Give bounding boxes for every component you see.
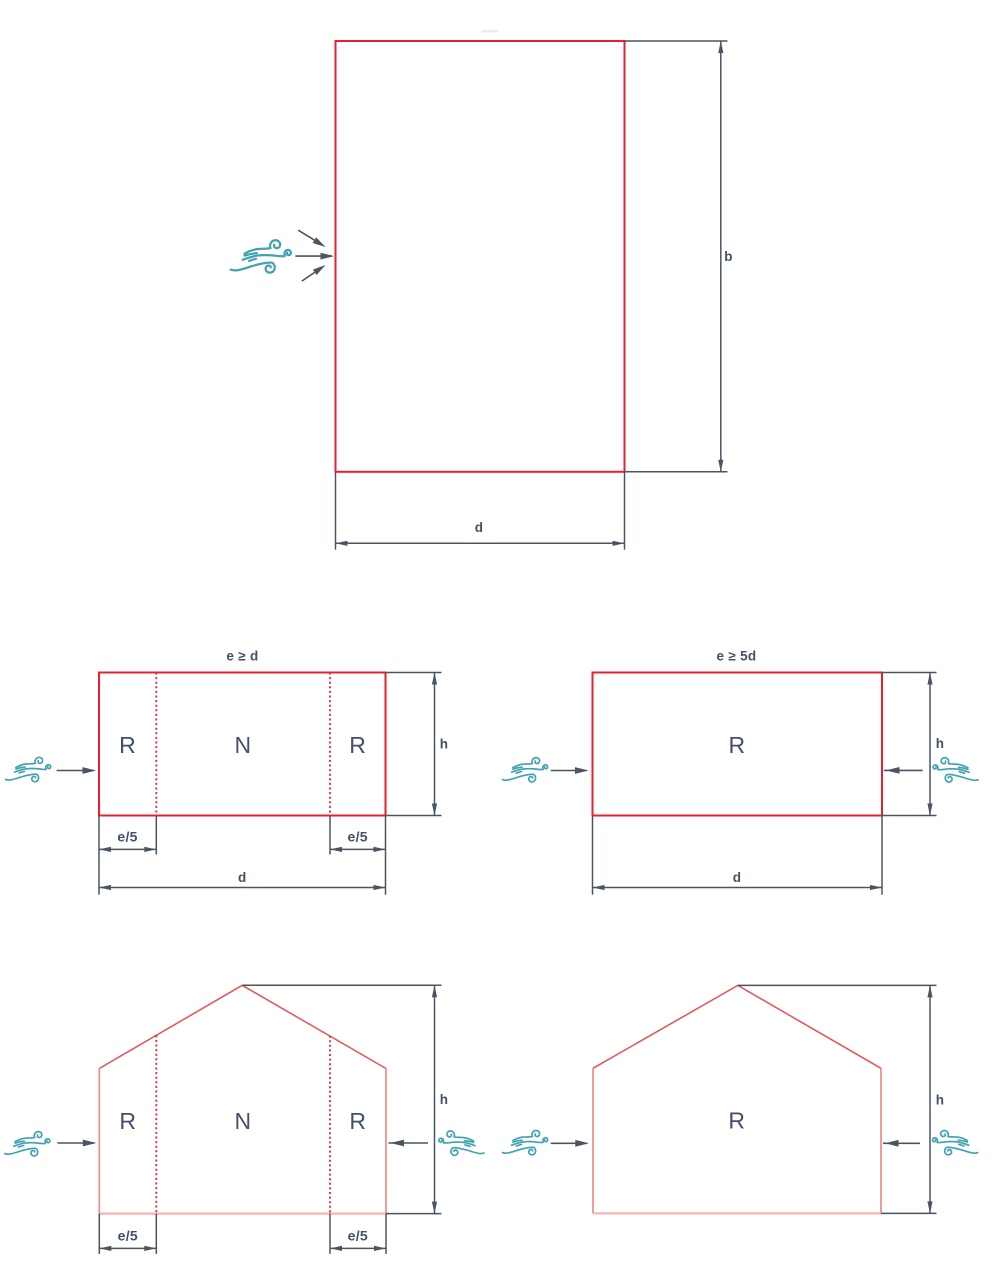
svg-text:e ≥ d: e ≥ d xyxy=(226,649,258,664)
svg-text:b: b xyxy=(724,249,733,264)
svg-text:e ≥ 5d: e ≥ 5d xyxy=(717,649,757,664)
svg-text:e/5: e/5 xyxy=(118,1228,138,1244)
svg-text:e/5: e/5 xyxy=(348,829,368,845)
svg-text:R: R xyxy=(349,1108,366,1134)
svg-text:R: R xyxy=(349,732,366,758)
svg-text:R: R xyxy=(728,1108,745,1134)
svg-text:h: h xyxy=(440,737,449,752)
svg-text:N: N xyxy=(235,732,252,758)
svg-text:d: d xyxy=(733,870,742,885)
svg-text:e/5: e/5 xyxy=(348,1228,368,1244)
svg-text:d: d xyxy=(475,520,484,535)
svg-text:d: d xyxy=(238,870,247,885)
svg-text:h: h xyxy=(440,1092,449,1107)
svg-text:h: h xyxy=(936,1092,945,1107)
svg-text:h: h xyxy=(936,736,945,751)
svg-text:N: N xyxy=(235,1108,252,1134)
svg-text:R: R xyxy=(119,732,136,758)
svg-text:R: R xyxy=(119,1108,136,1134)
svg-text:e/5: e/5 xyxy=(117,829,137,845)
svg-text:R: R xyxy=(729,732,746,758)
